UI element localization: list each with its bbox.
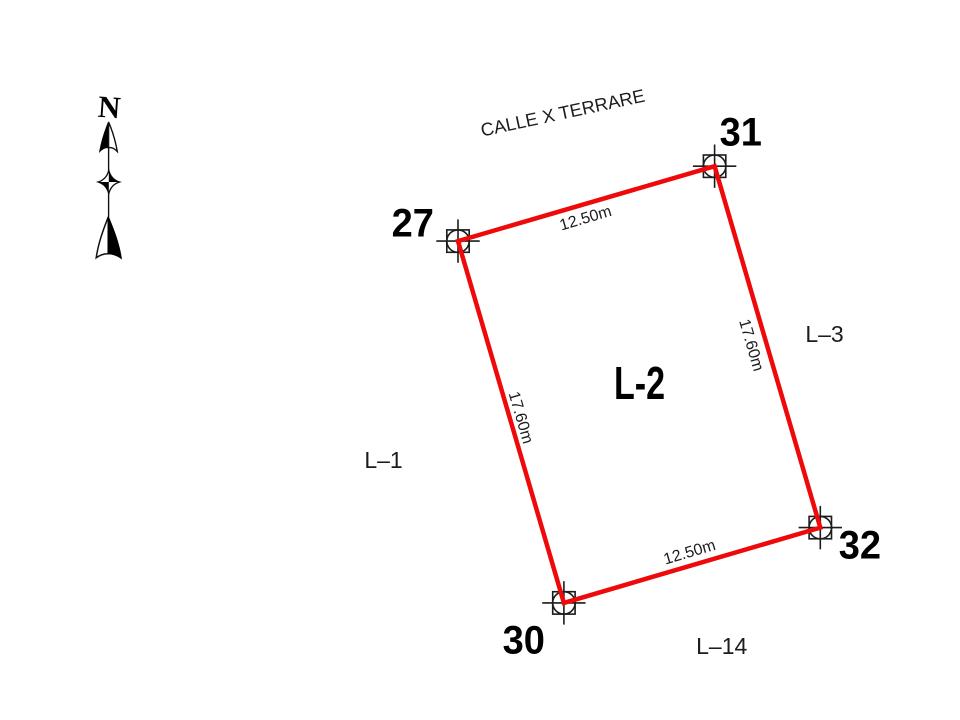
svg-text:32: 32 [839, 524, 881, 568]
svg-text:L–14: L–14 [696, 633, 747, 659]
svg-text:L-2: L-2 [614, 357, 665, 409]
svg-text:L–3: L–3 [805, 321, 843, 347]
svg-text:30: 30 [503, 618, 545, 662]
svg-text:31: 31 [720, 111, 762, 155]
svg-text:27: 27 [392, 202, 434, 246]
svg-text:L–1: L–1 [364, 447, 402, 473]
svg-text:N: N [97, 89, 122, 125]
